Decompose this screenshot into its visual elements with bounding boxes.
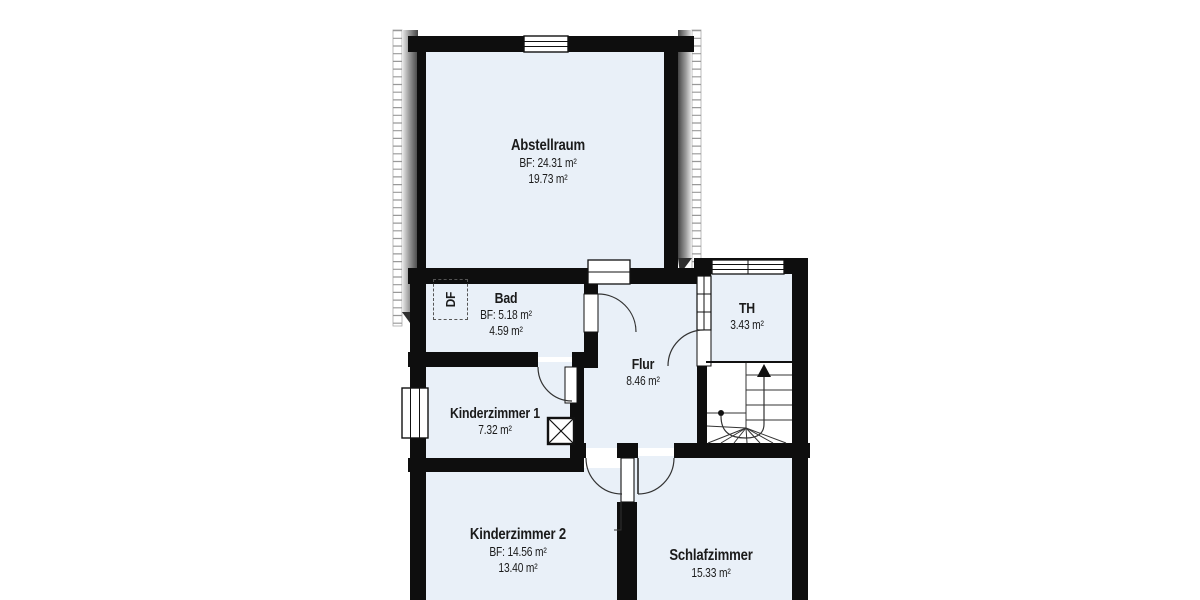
room-label-schlafzimmer: Schlafzimmer 15.33 m² bbox=[669, 548, 752, 581]
room-label-flur: Flur 8.46 m² bbox=[626, 357, 660, 389]
room-name: Kinderzimmer 2 bbox=[470, 527, 566, 544]
room-name: Flur bbox=[626, 357, 660, 373]
roof-window-tag: DF bbox=[433, 279, 468, 320]
room-area: 3.43 m² bbox=[730, 317, 764, 333]
room-name: Schlafzimmer bbox=[669, 548, 752, 565]
room-area-gross: BF: 14.56 m² bbox=[470, 544, 566, 560]
room-label-abstellraum: Abstellraum BF: 24.31 m² 19.73 m² bbox=[511, 138, 585, 187]
room-area: 15.33 m² bbox=[669, 565, 752, 581]
room-area-gross: BF: 24.31 m² bbox=[511, 155, 585, 171]
room-label-kinderzimmer-2: Kinderzimmer 2 BF: 14.56 m² 13.40 m² bbox=[470, 527, 566, 576]
window-top bbox=[524, 36, 568, 52]
room-area-net: 13.40 m² bbox=[470, 560, 566, 576]
room-area: 7.32 m² bbox=[450, 422, 540, 438]
room-name: Kinderzimmer 1 bbox=[450, 406, 540, 422]
room-area: 8.46 m² bbox=[626, 373, 660, 389]
glazed-partition bbox=[697, 276, 711, 330]
window-kinderzimmer1 bbox=[402, 388, 428, 438]
room-area-net: 4.59 m² bbox=[480, 323, 532, 339]
room-label-th: TH 3.43 m² bbox=[730, 301, 764, 333]
room-name: Bad bbox=[480, 291, 532, 307]
floor-plan-page: Abstellraum BF: 24.31 m² 19.73 m² Bad BF… bbox=[0, 0, 1200, 600]
skylight-flur bbox=[588, 260, 630, 284]
room-name: TH bbox=[730, 301, 764, 317]
right-roof-cheek bbox=[678, 30, 701, 274]
room-label-bad: Bad BF: 5.18 m² 4.59 m² bbox=[480, 291, 532, 339]
room-name: Abstellraum bbox=[511, 138, 585, 155]
window-th bbox=[712, 260, 784, 274]
room-area-gross: BF: 5.18 m² bbox=[480, 307, 532, 323]
floor-plan-drawing bbox=[0, 0, 1200, 600]
room-label-kinderzimmer-1: Kinderzimmer 1 7.32 m² bbox=[450, 406, 540, 438]
shaft-symbol bbox=[548, 418, 574, 444]
room-area-net: 19.73 m² bbox=[511, 171, 585, 187]
roof-window-label: DF bbox=[443, 292, 458, 308]
